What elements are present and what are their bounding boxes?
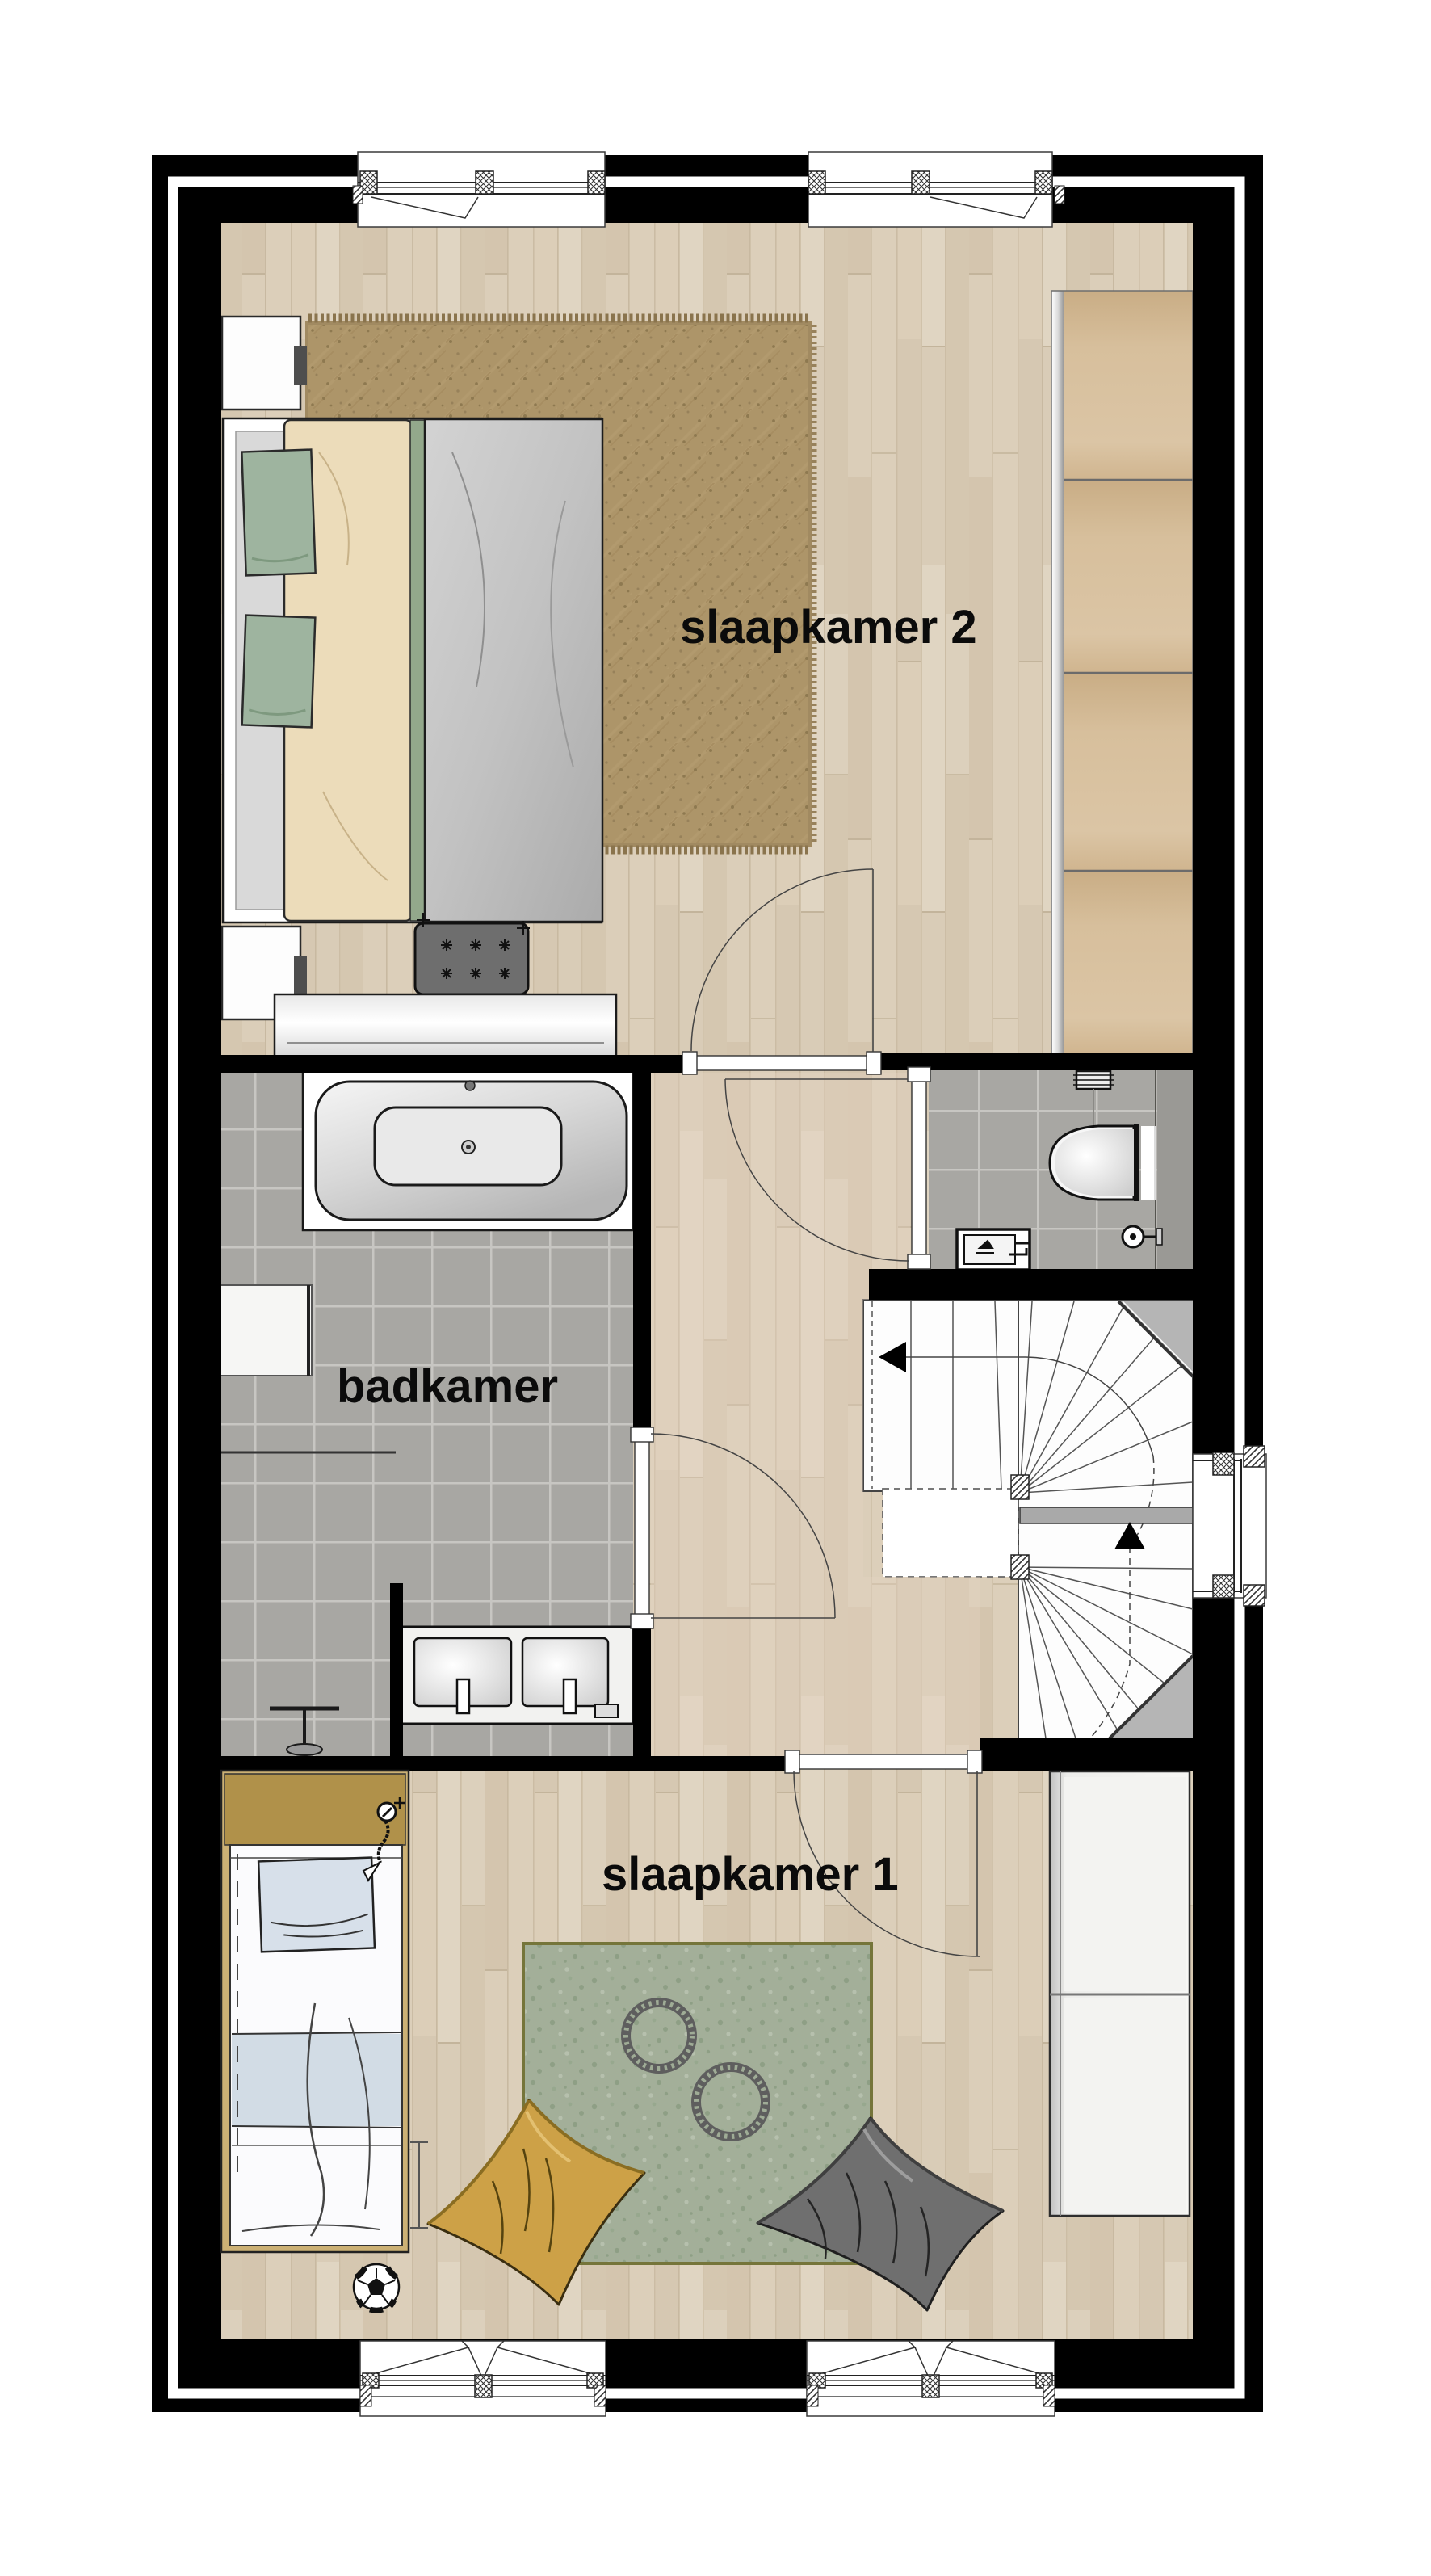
svg-text:badkamer: badkamer xyxy=(337,1360,558,1413)
svg-text:slaapkamer 1: slaapkamer 1 xyxy=(602,1848,899,1901)
svg-text:slaapkamer 2: slaapkamer 2 xyxy=(680,601,977,653)
